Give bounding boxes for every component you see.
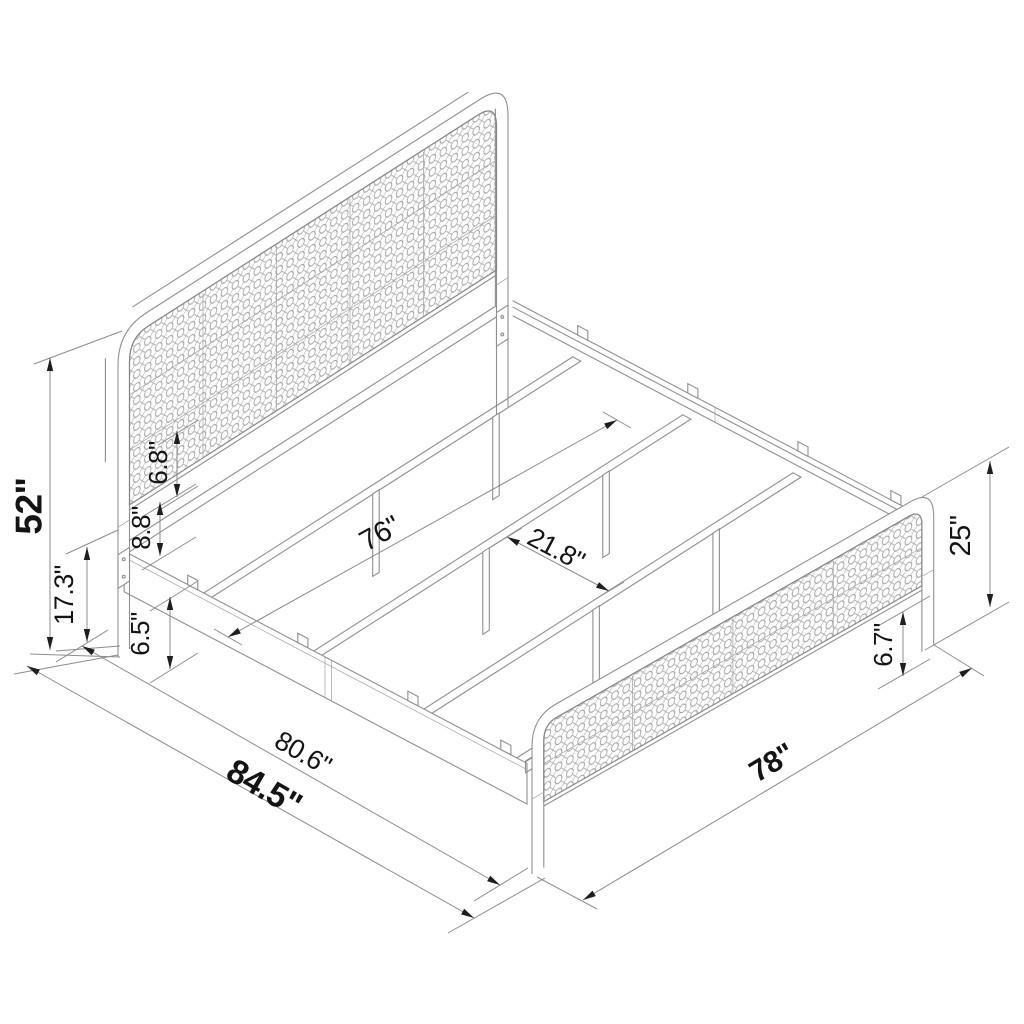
dim-label-headboard_height: 52" [9,477,50,534]
rail-bracket-plate [497,305,509,346]
dim-label-panel_to_rail: 8.8" [126,506,156,550]
rail-bracket-plate [118,547,130,588]
extension-line [922,447,1009,497]
dimension-arrowhead [604,420,617,429]
dimension-arrowhead [47,358,53,371]
dim-label-footboard_height: 25" [945,515,977,556]
headboard-cane-panel [130,111,497,505]
dim-label-panel_gap: 6.8" [143,441,173,485]
dimension-arrowhead [987,461,993,474]
dimension-arrowhead [461,909,474,918]
extension-line [66,530,118,554]
dim-label-slat_spacing: 21.8" [523,522,590,576]
slat-bracket-tab [891,491,901,506]
dimension-arrowhead [47,637,53,650]
dimension-rail_height: 17.3" [49,530,120,651]
diagram-canvas: 52"17.3"6.8"8.8"6.5"76"21.8"25"6.7"80.6"… [0,0,1024,1024]
extension-line [14,655,118,674]
extension-line [474,868,528,901]
dimension-arrowhead [959,668,972,677]
slat-end [573,357,581,361]
headboard [105,92,508,656]
headboard-leg-joint [497,278,509,285]
slat-bracket-tab [798,442,808,457]
slat-support-leg [713,529,720,616]
extension-line [30,654,120,657]
dimension-arrowhead [583,891,596,900]
extension-line [34,331,122,364]
extension-line [925,602,1009,650]
slat-support-leg [603,471,610,558]
dimension-total_length: 84.5" [14,655,545,933]
slat-end [793,473,801,477]
dimension-footboard_height: 25" [922,447,1009,650]
dimension-arrowhead [84,629,90,642]
extension-line [934,645,984,676]
slat-end [683,415,691,419]
dimension-arrowhead [82,646,95,655]
slat-bracket-tab [688,384,698,399]
dim-label-footboard_clearance: 6.7" [868,623,898,667]
dimension-arrowhead [157,543,163,556]
dim-label-inner_width: 76" [354,510,406,558]
dimension-arrowhead [507,537,520,546]
dimension-arrowhead [900,663,906,676]
footboard [532,497,934,874]
extension-line [448,878,545,933]
extension-line [150,653,198,683]
dimension-line [82,646,500,885]
dimension-arrowhead [167,656,173,669]
extension-line [537,877,597,909]
far-rail-bottom [513,316,919,530]
dimension-arrowhead [596,582,609,591]
dimension-arrowhead [987,594,993,607]
far-rail-top [513,301,919,515]
dimension-arrowhead [27,666,40,675]
dim-label-rail_clearance: 6.5" [125,612,155,656]
dim-label-rail_height: 17.3" [49,565,79,625]
bed-dimension-diagram: 52"17.3"6.8"8.8"6.5"76"21.8"25"6.7"80.6"… [0,0,1024,1024]
dimension-arrowhead [487,876,500,885]
slat-bracket-tab [578,326,588,341]
slat-support-leg [483,548,490,635]
far-rail-lip [513,307,919,521]
dimension-arrowhead [84,547,90,560]
